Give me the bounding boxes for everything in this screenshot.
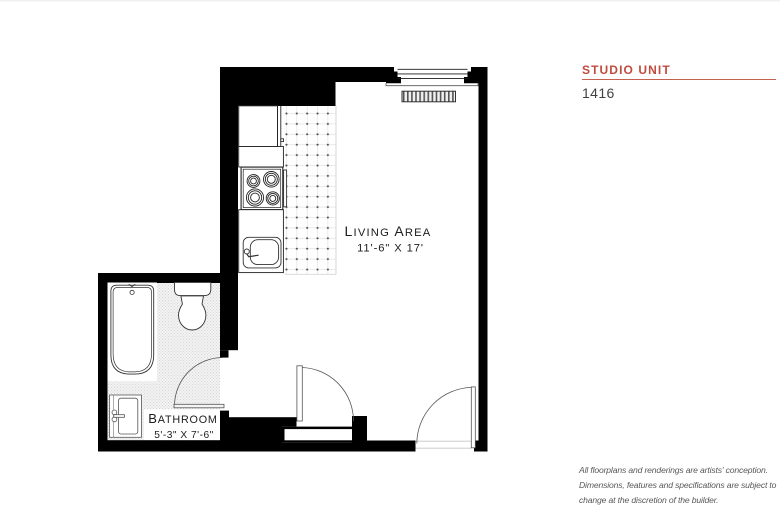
- svg-text:5'-3" X 7'-6": 5'-3" X 7'-6": [154, 430, 214, 441]
- svg-text:BATHROOM: BATHROOM: [148, 411, 217, 426]
- svg-text:11'-6" X 17': 11'-6" X 17': [357, 242, 424, 254]
- svg-text:LIVING AREA: LIVING AREA: [345, 223, 432, 239]
